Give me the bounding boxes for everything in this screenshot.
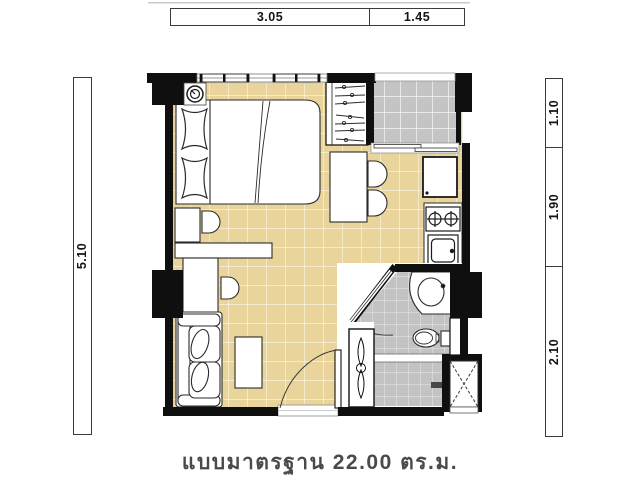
door-leaf [335,350,341,408]
refrigerator [423,157,457,197]
kitchen-sink [428,235,458,266]
floor-plan-drawing [0,0,640,480]
dimension-right-1: 1.10 [545,78,563,148]
floor-drain [431,382,443,388]
stove-two-burners [426,207,460,231]
built-in-cabinet [349,329,374,407]
dimension-left: 5.10 [73,77,92,435]
dimension-right-2: 1.90 [545,147,563,267]
sliding-door [371,143,459,153]
dimension-right-3: 2.10 [545,266,563,437]
page-edge-line [148,2,470,4]
shaft-access-panel [450,318,461,355]
windows [197,73,455,82]
shower-partition [373,354,452,362]
long-counter [175,243,272,258]
dimension-top-1: 3.05 [170,8,370,26]
kitchen [423,157,462,270]
desk [183,258,218,318]
floor-plan-page: 3.05 1.45 5.10 1.10 1.90 2.10 แบบมาตรฐาน… [0,0,640,480]
balcony [374,81,458,145]
vanity-chair [202,211,220,233]
balcony-railing [375,73,455,81]
desk-chair [221,277,239,299]
dining-table [330,152,367,222]
dimension-top-2: 1.45 [369,8,465,26]
plan-caption: แบบมาตรฐาน 22.00 ตร.ม. [0,446,640,479]
service-shaft [442,354,482,413]
wardrobe-with-hangers [326,82,368,145]
toilet [413,329,450,347]
coffee-table [235,337,262,388]
ceiling-light-symbol [184,83,206,105]
sofa [176,312,222,407]
